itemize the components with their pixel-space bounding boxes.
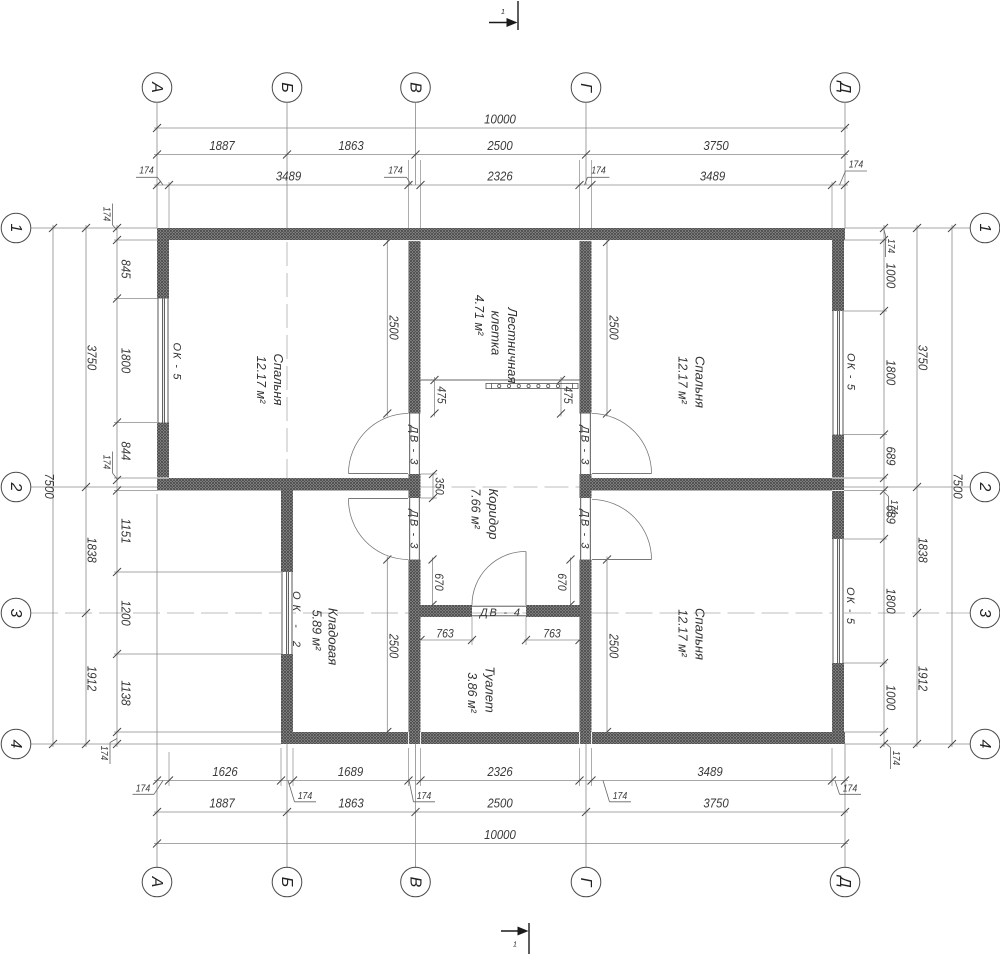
svg-text:4.71 м²: 4.71 м²	[472, 295, 486, 336]
svg-text:Кладовая: Кладовая	[326, 608, 341, 665]
svg-text:174: 174	[98, 746, 109, 761]
svg-text:1838: 1838	[916, 537, 931, 563]
svg-text:Спальня: Спальня	[271, 354, 286, 406]
svg-text:670: 670	[432, 573, 446, 591]
svg-text:1: 1	[513, 940, 517, 949]
svg-text:ДВ - 3: ДВ - 3	[579, 508, 591, 550]
svg-text:174: 174	[890, 751, 901, 766]
svg-text:Д: Д	[836, 874, 853, 887]
svg-text:клетка: клетка	[489, 311, 504, 356]
svg-text:7500: 7500	[42, 473, 57, 499]
svg-text:3750: 3750	[703, 796, 729, 811]
svg-text:174: 174	[298, 791, 313, 802]
svg-text:ОК - 5: ОК - 5	[845, 353, 857, 391]
svg-text:174: 174	[885, 239, 896, 254]
svg-text:12.17 м²: 12.17 м²	[254, 356, 268, 404]
svg-text:2326: 2326	[486, 764, 513, 779]
svg-text:А: А	[148, 876, 165, 888]
svg-text:2500: 2500	[606, 314, 620, 339]
svg-text:Г: Г	[577, 878, 594, 888]
svg-text:1912: 1912	[85, 666, 100, 692]
svg-text:763: 763	[543, 626, 561, 640]
svg-text:475: 475	[434, 386, 448, 404]
svg-text:1838: 1838	[85, 537, 100, 563]
svg-text:1: 1	[7, 224, 24, 233]
svg-text:2500: 2500	[387, 633, 401, 658]
svg-text:174: 174	[139, 165, 154, 176]
svg-text:3750: 3750	[703, 138, 729, 153]
svg-text:689: 689	[884, 447, 899, 466]
svg-text:Лестничная: Лестничная	[505, 307, 520, 384]
svg-text:844: 844	[119, 442, 134, 461]
svg-text:Туалет: Туалет	[483, 666, 498, 713]
svg-text:3489: 3489	[276, 169, 301, 184]
svg-text:Б: Б	[278, 877, 295, 887]
svg-text:10000: 10000	[484, 827, 516, 842]
svg-text:3: 3	[7, 609, 24, 618]
svg-text:174: 174	[417, 791, 432, 802]
svg-text:10000: 10000	[484, 112, 516, 127]
svg-text:3750: 3750	[85, 345, 100, 371]
svg-text:1863: 1863	[338, 796, 364, 811]
svg-text:763: 763	[436, 626, 454, 640]
svg-text:670: 670	[555, 573, 569, 591]
svg-text:845: 845	[119, 260, 134, 280]
svg-text:1912: 1912	[916, 666, 931, 692]
svg-text:2: 2	[976, 482, 993, 492]
svg-text:В: В	[407, 82, 424, 93]
svg-text:1000: 1000	[884, 263, 899, 289]
svg-text:3.86 м²: 3.86 м²	[465, 672, 479, 713]
svg-text:1863: 1863	[338, 138, 364, 153]
svg-text:1: 1	[976, 224, 993, 233]
svg-text:7.66 м²: 7.66 м²	[469, 488, 483, 529]
svg-text:1800: 1800	[884, 588, 899, 614]
svg-text:7500: 7500	[951, 473, 966, 499]
svg-text:174: 174	[591, 165, 606, 176]
svg-text:2500: 2500	[486, 796, 513, 811]
svg-text:Спальня: Спальня	[693, 608, 708, 660]
svg-text:Коридор: Коридор	[486, 489, 501, 540]
svg-text:174: 174	[613, 791, 628, 802]
svg-text:12.17 м²: 12.17 м²	[676, 609, 690, 657]
svg-text:4: 4	[7, 740, 24, 749]
svg-text:350: 350	[433, 477, 447, 495]
svg-text:А: А	[148, 81, 165, 93]
svg-text:ДВ - 3: ДВ - 3	[408, 508, 420, 550]
svg-text:В: В	[407, 877, 424, 888]
svg-text:Спальня: Спальня	[693, 356, 708, 408]
svg-text:3489: 3489	[697, 764, 722, 779]
svg-text:1: 1	[501, 7, 505, 16]
svg-text:Д: Д	[836, 80, 853, 93]
svg-text:ОК - 5: ОК - 5	[844, 587, 856, 625]
svg-text:1200: 1200	[119, 600, 134, 626]
svg-text:1138: 1138	[119, 680, 134, 706]
svg-text:174: 174	[136, 783, 151, 794]
svg-text:3750: 3750	[916, 345, 931, 371]
svg-text:174: 174	[101, 207, 112, 222]
svg-text:1151: 1151	[119, 518, 134, 543]
svg-text:1887: 1887	[209, 796, 235, 811]
svg-text:ДВ - 4: ДВ - 4	[478, 607, 520, 619]
svg-text:ОК - 5: ОК - 5	[171, 343, 183, 381]
svg-text:5.89 м²: 5.89 м²	[310, 610, 324, 651]
svg-text:2326: 2326	[486, 169, 513, 184]
svg-text:1800: 1800	[884, 360, 899, 386]
svg-text:174: 174	[388, 165, 403, 176]
svg-text:2500: 2500	[606, 633, 620, 658]
svg-text:ДВ - 3: ДВ - 3	[408, 424, 420, 466]
svg-text:3: 3	[976, 609, 993, 618]
svg-text:2500: 2500	[387, 314, 401, 339]
svg-text:174: 174	[843, 783, 858, 794]
svg-text:1800: 1800	[119, 348, 134, 374]
svg-text:12.17 м²: 12.17 м²	[676, 356, 690, 404]
svg-text:Б: Б	[278, 82, 295, 92]
svg-text:ДВ - 3: ДВ - 3	[579, 424, 591, 466]
svg-text:3489: 3489	[700, 169, 725, 184]
svg-text:1887: 1887	[209, 138, 235, 153]
svg-text:Г: Г	[577, 83, 594, 93]
svg-text:174: 174	[101, 455, 112, 470]
svg-text:4: 4	[976, 740, 993, 749]
svg-text:174: 174	[849, 160, 864, 171]
svg-text:174: 174	[888, 500, 899, 515]
svg-text:2: 2	[7, 482, 24, 492]
svg-text:2500: 2500	[486, 138, 513, 153]
svg-text:1000: 1000	[884, 685, 899, 711]
svg-text:1689: 1689	[338, 764, 363, 779]
svg-text:1626: 1626	[212, 764, 238, 779]
